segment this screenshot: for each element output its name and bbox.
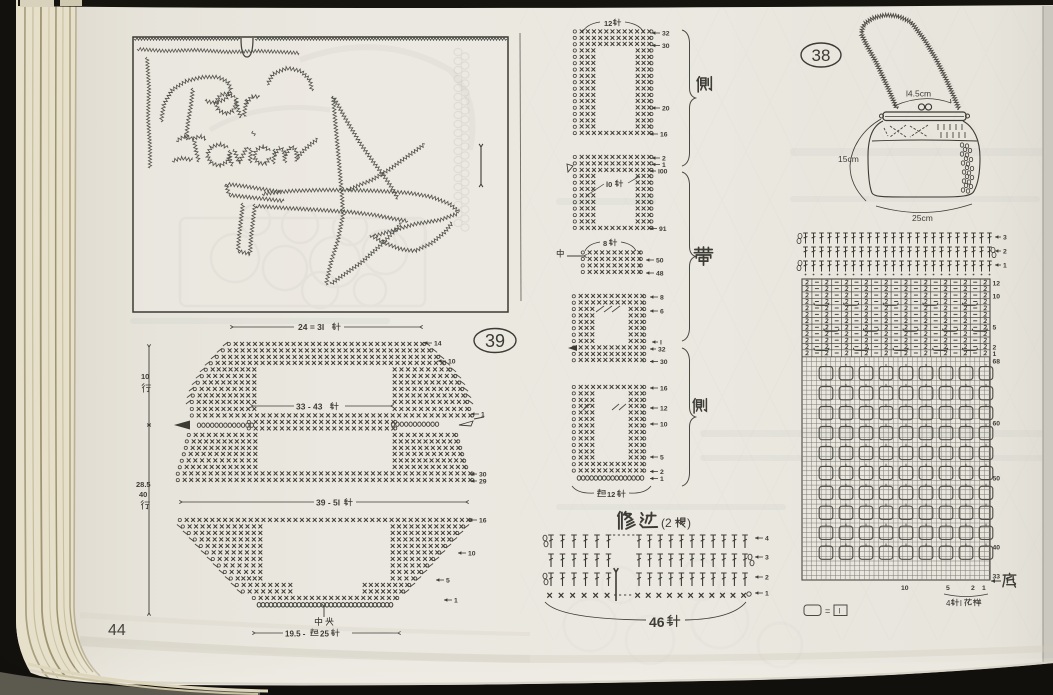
svg-text:5: 5 (660, 454, 664, 461)
svg-text:44: 44 (108, 622, 126, 639)
svg-text:(2: (2 (661, 516, 672, 530)
svg-text:×: × (592, 590, 598, 602)
svg-text:50: 50 (993, 476, 1001, 483)
svg-text:1: 1 (982, 585, 986, 592)
svg-text:40: 40 (993, 545, 1001, 552)
svg-text:10: 10 (468, 550, 476, 557)
svg-text:33 - 43: 33 - 43 (296, 402, 323, 412)
svg-text:2: 2 (1003, 248, 1007, 255)
svg-text:××××××××××××××××××××××××××××××: ××××××××××××××××××××××××××××××××××××××××… (182, 475, 473, 485)
svg-text:××××××××××××××××××××××: ×××××××××××××××××××××× (258, 593, 398, 603)
svg-text:12: 12 (607, 490, 615, 499)
svg-text:×: × (634, 590, 640, 602)
svg-text:30: 30 (662, 43, 670, 50)
svg-text:20: 20 (662, 105, 670, 112)
svg-text:16: 16 (660, 385, 668, 392)
svg-text:19.5 -: 19.5 - (285, 630, 306, 639)
svg-text:×××××××××××: ××××××××××× (578, 355, 645, 365)
svg-text:12: 12 (993, 281, 1001, 288)
svg-text:5: 5 (446, 577, 450, 584)
svg-text:×: × (569, 590, 575, 602)
svg-text:×: × (730, 590, 736, 602)
svg-text:48: 48 (656, 270, 664, 277)
svg-text:2: 2 (660, 469, 664, 476)
svg-text:60: 60 (993, 421, 1001, 428)
svg-text:4: 4 (765, 535, 769, 542)
svg-text:16: 16 (479, 517, 487, 524)
svg-text:×: × (698, 590, 704, 602)
svg-text:10: 10 (141, 372, 149, 381)
svg-text:l0: l0 (606, 180, 612, 189)
svg-text:32: 32 (658, 346, 666, 353)
svg-text:29: 29 (479, 478, 487, 485)
svg-text:3: 3 (1003, 234, 1007, 241)
svg-text:×: × (604, 590, 610, 602)
svg-text:3: 3 (765, 554, 769, 561)
svg-text:2: 2 (765, 574, 769, 581)
svg-text:×: × (677, 590, 683, 602)
svg-text:1: 1 (1003, 262, 1007, 269)
svg-text:38: 38 (812, 46, 831, 65)
svg-text:30: 30 (660, 359, 668, 366)
svg-text:=: = (825, 606, 830, 616)
svg-text:10: 10 (901, 585, 909, 592)
svg-text:5: 5 (993, 325, 997, 332)
svg-text:10: 10 (993, 294, 1001, 301)
svg-text:68: 68 (993, 359, 1001, 366)
svg-text:6: 6 (660, 308, 664, 315)
svg-text:×: × (656, 590, 662, 602)
svg-text:16: 16 (660, 131, 668, 138)
svg-text:1: 1 (765, 590, 769, 597)
svg-text:25: 25 (320, 630, 329, 639)
svg-text:14: 14 (434, 340, 442, 347)
svg-text:××××××××××××××××××××××: ×××××××××××××××××××××× (253, 423, 396, 433)
svg-text:×: × (645, 590, 651, 602)
svg-text:1: 1 (993, 351, 997, 358)
svg-text:×: × (666, 590, 672, 602)
svg-text:l: l (960, 599, 962, 608)
svg-text:1: 1 (454, 597, 458, 604)
svg-text:8: 8 (660, 294, 664, 301)
svg-text:×: × (709, 590, 715, 602)
svg-text:25cm: 25cm (912, 213, 933, 223)
svg-text:32: 32 (662, 30, 670, 37)
svg-text:50: 50 (656, 257, 664, 264)
svg-text:40: 40 (139, 490, 147, 499)
svg-text:10: 10 (660, 421, 668, 428)
svg-text:×××××××××: ××××××××× (587, 267, 642, 277)
svg-text:28.5: 28.5 (136, 480, 151, 489)
svg-text:8: 8 (603, 239, 607, 248)
svg-text:l: l (660, 339, 662, 346)
svg-text:1: 1 (660, 476, 664, 483)
svg-text:24 = 3l: 24 = 3l (298, 322, 324, 332)
svg-text:33: 33 (993, 574, 1001, 581)
svg-text:15cm: 15cm (838, 154, 859, 164)
svg-text:5: 5 (946, 585, 950, 592)
svg-text:l00: l00 (658, 168, 668, 175)
svg-text:12: 12 (660, 405, 668, 412)
svg-text:): ) (687, 516, 691, 530)
svg-text:30: 30 (479, 471, 487, 478)
svg-text:39: 39 (485, 331, 505, 351)
svg-text:×××××××××××: ××××××××××× (578, 466, 645, 476)
svg-text:×: × (558, 590, 564, 602)
svg-text:××××××××××××: ×××××××××××× (579, 128, 652, 138)
svg-text:4: 4 (946, 599, 951, 608)
svg-text:12: 12 (604, 19, 612, 28)
svg-text:×: × (581, 590, 587, 602)
svg-text:91: 91 (659, 226, 667, 233)
svg-text:×: × (719, 590, 725, 602)
svg-text:×: × (740, 590, 746, 602)
svg-text:2: 2 (971, 585, 975, 592)
svg-text:46: 46 (649, 614, 665, 630)
svg-text:×: × (546, 590, 552, 602)
svg-text:10: 10 (448, 358, 456, 365)
svg-text:39 - 5l: 39 - 5l (316, 498, 340, 508)
svg-text:××××××××××××: ×××××××××××× (579, 223, 652, 233)
svg-text:×: × (687, 590, 693, 602)
svg-text:l4.5cm: l4.5cm (906, 89, 931, 99)
